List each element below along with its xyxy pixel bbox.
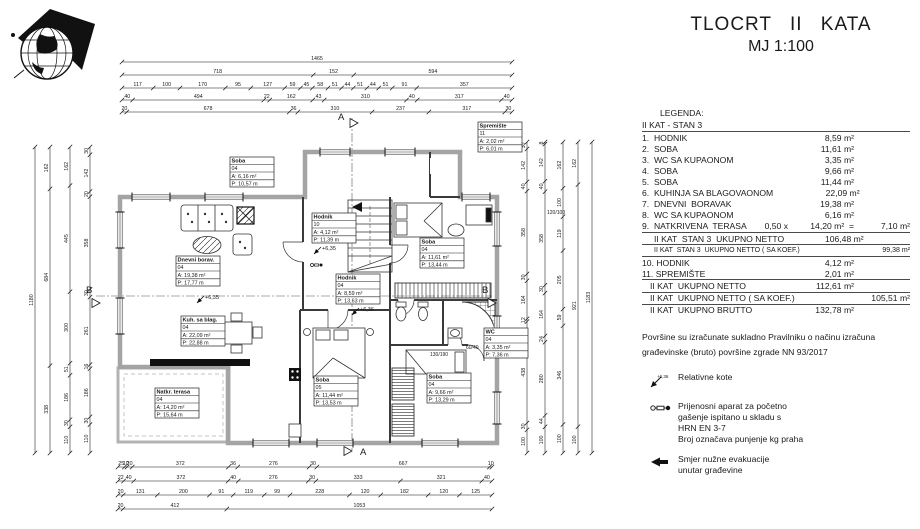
- svg-text:A: 11,61 m²: A: 11,61 m²: [422, 255, 450, 261]
- svg-text:142: 142: [84, 169, 90, 178]
- legend-row: 2. SOBA11,61 m²: [642, 143, 910, 154]
- svg-text:142: 142: [521, 161, 527, 170]
- svg-text:40: 40: [230, 475, 236, 481]
- svg-text:100: 100: [521, 437, 527, 446]
- drawing-title-block: TLOCRT II KATA MJ 1:100: [645, 14, 917, 56]
- svg-text:44: 44: [344, 82, 350, 88]
- wardrobe-bottom: [392, 368, 414, 436]
- armchair: [233, 234, 252, 255]
- svg-text:A: 14,20 m²: A: 14,20 m²: [157, 405, 185, 411]
- svg-text:164: 164: [539, 310, 545, 319]
- window: [132, 193, 170, 202]
- legend-subheading: II KAT - STAN 3: [642, 120, 910, 133]
- svg-text:120: 120: [439, 489, 448, 495]
- room-label-box: Hodnik10A: 4,12 m²P: 11,39 m: [312, 213, 356, 244]
- svg-text:22: 22: [118, 475, 124, 481]
- svg-text:40: 40: [484, 475, 490, 481]
- svg-text:B: B: [482, 285, 488, 296]
- legend-row: 8. WC SA KUPAONOM6,16 m²: [642, 210, 910, 221]
- svg-text:Soba: Soba: [232, 159, 247, 165]
- room-label-box: Spremište11A: 2,02 m²P: 6,01 m: [478, 122, 522, 153]
- svg-text:A: A: [338, 112, 345, 123]
- elevation-marker: +6,35: [197, 295, 219, 303]
- svg-text:20: 20: [118, 503, 124, 509]
- dimension-chain-horizontal: 718152594: [120, 69, 514, 77]
- svg-text:321: 321: [437, 475, 446, 481]
- tv-table: [237, 207, 254, 224]
- svg-text:152: 152: [329, 69, 338, 75]
- svg-text:182: 182: [400, 489, 409, 495]
- svg-text:594: 594: [428, 69, 437, 75]
- desk: [448, 205, 492, 236]
- svg-text:110: 110: [84, 435, 90, 443]
- svg-text:05: 05: [316, 385, 322, 391]
- svg-text:A: 8,59 m²: A: 8,59 m²: [338, 291, 363, 297]
- svg-text:04: 04: [183, 325, 189, 331]
- legend-cell: 99,38 m²: [869, 246, 910, 257]
- dimension-chain-vertical: 814240358301642428044100: [539, 140, 547, 455]
- svg-text:338: 338: [44, 405, 50, 414]
- legend-cell: 3,35 m²: [788, 155, 854, 166]
- svg-text:04: 04: [178, 265, 184, 271]
- legend-cell: 4. SOBA: [642, 166, 758, 177]
- calculation-note: Površine su izračunate sukladno Pravilni…: [642, 330, 912, 360]
- rug: [193, 237, 221, 254]
- svg-text:186: 186: [84, 388, 90, 397]
- symbol-text-line: HRN EN 3-7: [678, 423, 803, 434]
- svg-text:438: 438: [521, 368, 527, 377]
- svg-text:P: 13,63 m: P: 13,63 m: [338, 299, 365, 305]
- svg-text:40: 40: [126, 475, 132, 481]
- dimension-chain-vertical: 3014220358302611618630110: [84, 145, 92, 455]
- window: [493, 392, 502, 424]
- dimension-chain-horizontal: 11710017095127594558514451445191357: [120, 82, 514, 90]
- legend-cell: 9. NATKRIVENA TERASA: [642, 221, 758, 232]
- legend-row: 1. HODNIK8,59 m²: [642, 132, 910, 143]
- section-marker: A: [338, 112, 358, 128]
- svg-text:P: 13,44 m: P: 13,44 m: [422, 263, 449, 269]
- svg-text:30: 30: [521, 423, 527, 429]
- legend-cell: 8. WC SA KUPAONOM: [642, 210, 758, 221]
- symbol-entry-evacuation: Smjer nužne evakuacijeunutar građevine: [648, 454, 914, 476]
- svg-text:36: 36: [230, 461, 236, 467]
- svg-text:30: 30: [521, 274, 527, 280]
- bathroom-fixtures: [396, 302, 495, 338]
- svg-text:16: 16: [84, 364, 90, 370]
- room-label-box: Soba04A: 6,16 m²P: 10,57 m: [230, 157, 274, 188]
- svg-text:P: 22,88 m: P: 22,88 m: [183, 341, 210, 347]
- svg-text:Hodnik: Hodnik: [314, 215, 334, 221]
- svg-text:110: 110: [64, 436, 70, 444]
- svg-text:100: 100: [557, 434, 563, 443]
- elevation-marker: +6,35: [314, 246, 336, 254]
- svg-text:44: 44: [539, 418, 545, 424]
- svg-text:A: A: [360, 447, 367, 458]
- svg-text:P: 17,77 m: P: 17,77 m: [178, 281, 205, 287]
- svg-text:276: 276: [269, 461, 278, 467]
- legend-cell: 11,44 m²: [788, 177, 854, 188]
- svg-text:A: 11,44 m²: A: 11,44 m²: [316, 393, 344, 399]
- section-marker: A: [344, 447, 367, 459]
- svg-text:P: 7,36 m: P: 7,36 m: [486, 353, 510, 359]
- svg-text:A: 6,16 m²: A: 6,16 m²: [232, 174, 257, 180]
- room-label-box: Natkr. terasa04A: 14,20 m²P: 15,64 m: [155, 388, 199, 419]
- legend-cell: II KAT STAN 3 UKUPNO NETTO: [642, 234, 784, 245]
- svg-text:162: 162: [557, 161, 563, 170]
- legend-cell: 3. WC SA KUPAONOM: [642, 155, 758, 166]
- svg-text:A: 3,35 m²: A: 3,35 m²: [486, 345, 511, 351]
- symbol-label: Smjer nužne evakuacijeunutar građevine: [678, 454, 769, 476]
- wardrobe-top: [395, 283, 491, 298]
- dimension-chain-vertical: 162921100: [572, 140, 580, 455]
- legend-cell: 5. SOBA: [642, 177, 758, 188]
- svg-text:P: 6,01 m: P: 6,01 m: [480, 147, 504, 153]
- svg-text:P: 10,57 m: P: 10,57 m: [232, 182, 259, 188]
- sofa: [181, 205, 233, 231]
- svg-text:117: 117: [133, 82, 141, 88]
- window: [462, 193, 490, 202]
- svg-text:22: 22: [264, 94, 270, 100]
- legend-cell: 105,51 m²: [868, 293, 910, 304]
- svg-text:494: 494: [194, 94, 203, 100]
- svg-text:40: 40: [521, 183, 527, 189]
- svg-text:WC: WC: [486, 330, 495, 336]
- note-line: građevinske (bruto) površine zgrade NN 9…: [642, 345, 912, 360]
- legend-cell: 10. HODNIK: [642, 258, 758, 269]
- window: [116, 212, 125, 248]
- legend-cell: 9,66 m²: [788, 166, 854, 177]
- svg-text:20: 20: [121, 106, 127, 112]
- svg-text:921: 921: [572, 301, 578, 310]
- symbol-text-line: gašenje ispitano u skladu s: [678, 412, 803, 423]
- room-label-box: Hodnik04A: 8,59 m²P: 13,63 m: [336, 274, 380, 305]
- svg-text:358: 358: [539, 234, 545, 243]
- legend-cell: 4,12 m²: [788, 258, 854, 269]
- svg-text:30: 30: [84, 418, 90, 424]
- svg-text:04: 04: [422, 247, 428, 253]
- svg-text:44: 44: [370, 82, 376, 88]
- svg-text:11: 11: [480, 131, 486, 137]
- room-label-box: Dnevni borav.04A: 19,38 m²P: 17,77 m: [176, 256, 220, 287]
- window: [205, 193, 243, 202]
- legend-row: II KAT STAN 3 UKUPNO NETTO ( SA KOEF.)99…: [642, 245, 910, 257]
- svg-text:04: 04: [429, 382, 435, 388]
- svg-text:45: 45: [303, 82, 309, 88]
- svg-text:186: 186: [64, 393, 70, 402]
- svg-text:8: 8: [539, 142, 545, 145]
- svg-text:Natkr. terasa: Natkr. terasa: [157, 390, 191, 396]
- svg-text:317: 317: [455, 94, 464, 100]
- svg-text:300: 300: [64, 323, 70, 332]
- evacuation-arrow: [352, 202, 362, 212]
- bed-double-top: [394, 203, 442, 237]
- svg-text:1183: 1183: [586, 292, 592, 303]
- legend-cell: 8,59 m²: [788, 133, 854, 144]
- svg-text:100: 100: [539, 435, 545, 444]
- fire-extinguisher-symbol: [311, 264, 323, 267]
- elevation-marker-icon: +6,36: [648, 372, 678, 392]
- svg-text:04: 04: [157, 397, 163, 403]
- svg-text:51: 51: [64, 366, 70, 372]
- svg-text:99: 99: [274, 489, 280, 495]
- svg-text:200: 200: [179, 489, 188, 495]
- room-label-box: WC04A: 3,35 m²P: 7,36 m: [484, 328, 528, 359]
- legend-cell: 7. DNEVNI BORAVAK: [642, 199, 758, 210]
- window: [253, 439, 289, 448]
- dimension-chain-vertical: 1183: [586, 140, 594, 455]
- svg-text:30: 30: [64, 420, 70, 426]
- svg-text:A: 4,12 m²: A: 4,12 m²: [314, 230, 339, 236]
- fire-extinguisher-icon: [648, 401, 678, 445]
- svg-text:P: 13,53 m: P: 13,53 m: [316, 401, 343, 407]
- svg-text:95: 95: [235, 82, 241, 88]
- window: [320, 148, 350, 157]
- dimension-chain-vertical: 3014240358301641243830100: [521, 140, 529, 455]
- svg-text:1053: 1053: [354, 503, 366, 509]
- svg-text:1465: 1465: [311, 56, 323, 62]
- svg-text:91: 91: [402, 82, 408, 88]
- legend-cell: 22,09 m²: [800, 188, 859, 199]
- svg-text:A: 9,66 m²: A: 9,66 m²: [429, 390, 454, 396]
- legend-cell: 11,61 m²: [788, 144, 854, 155]
- svg-text:40: 40: [124, 94, 130, 100]
- svg-text:261: 261: [84, 326, 90, 335]
- dimension-chain-horizontal: 4049422162433104031740: [120, 94, 514, 102]
- legend-row: II KAT UKUPNO NETTO ( SA KOEF.)105,51 m²: [642, 293, 910, 305]
- svg-text:162: 162: [44, 163, 50, 172]
- svg-text:20: 20: [84, 191, 90, 197]
- symbol-text-line: unutar građevine: [678, 465, 769, 476]
- window-size-label: 130/190: [430, 352, 448, 358]
- svg-text:100: 100: [557, 198, 563, 207]
- svg-text:P: 15,64 m: P: 15,64 m: [157, 413, 184, 419]
- svg-text:A: 19,38 m²: A: 19,38 m²: [178, 273, 206, 279]
- svg-text:P: 13,29 m: P: 13,29 m: [429, 398, 456, 404]
- legend-row: 6. KUHINJA SA BLAGOVAONOM22,09 m²: [642, 188, 910, 199]
- svg-text:120: 120: [361, 489, 370, 495]
- legend: LEGENDA: II KAT - STAN 3 1. HODNIK8,59 m…: [642, 108, 910, 316]
- legend-row: 5. SOBA11,44 m²: [642, 177, 910, 188]
- dimension-chain-vertical: 162684338: [44, 145, 52, 455]
- svg-text:100: 100: [162, 82, 171, 88]
- legend-cell: 6. KUHINJA SA BLAGOVAONOM: [642, 188, 773, 199]
- legend-cell: II KAT UKUPNO NETTO ( SA KOEF.): [642, 293, 795, 304]
- legend-cell: 7,10 m²: [854, 221, 910, 232]
- floor-plan-page: TLOCRT II KATA MJ 1:100 LEGENDA: II KAT …: [0, 0, 920, 529]
- legend-cell: 14,20 m² =: [788, 221, 854, 232]
- legend-row: II KAT UKUPNO NETTO112,61 m²: [642, 280, 910, 292]
- svg-text:30: 30: [539, 286, 545, 292]
- svg-text:678: 678: [204, 106, 213, 112]
- svg-text:100: 100: [572, 435, 578, 444]
- svg-text:58: 58: [317, 82, 323, 88]
- svg-text:125: 125: [471, 489, 480, 495]
- svg-text:Kuh. sa blag.: Kuh. sa blag.: [183, 318, 218, 324]
- svg-text:276: 276: [269, 475, 278, 481]
- svg-text:04: 04: [486, 337, 492, 343]
- svg-text:51: 51: [383, 82, 389, 88]
- legend-cell: 132,78 m²: [788, 305, 854, 316]
- legend-row: 10. HODNIK4,12 m²: [642, 257, 910, 268]
- symbol-text-line: Broj označava punjenje kg praha: [678, 434, 803, 445]
- svg-text:142: 142: [539, 158, 545, 167]
- symbol-text-line: Relativne kote: [678, 372, 732, 383]
- symbol-entry-elevation: +6,36 Relativne kote: [648, 372, 914, 392]
- svg-text:30: 30: [505, 106, 511, 112]
- svg-text:51: 51: [357, 82, 363, 88]
- dimension-chain-horizontal: 251020372362763066710: [116, 461, 494, 469]
- svg-text:280: 280: [539, 374, 545, 383]
- svg-text:127: 127: [263, 82, 272, 88]
- window-size-label: 60/40: [466, 345, 479, 351]
- svg-text:59: 59: [557, 314, 563, 320]
- svg-text:04: 04: [232, 166, 238, 172]
- svg-text:30: 30: [84, 148, 90, 154]
- svg-text:40: 40: [504, 94, 510, 100]
- dimension-chain-horizontal: 2240372402763033332140: [116, 475, 494, 483]
- svg-text:+6,35: +6,35: [205, 295, 219, 301]
- symbol-legend: +6,36 Relativne kote Prijenosni aparat z…: [648, 372, 914, 485]
- svg-text:372: 372: [176, 461, 185, 467]
- svg-text:412: 412: [170, 503, 179, 509]
- svg-text:237: 237: [396, 106, 405, 112]
- svg-text:P: 11,39 m: P: 11,39 m: [314, 238, 340, 244]
- window: [422, 439, 458, 448]
- svg-text:358: 358: [521, 228, 527, 237]
- window: [116, 298, 125, 334]
- legend-row: 4. SOBA9,66 m²: [642, 165, 910, 176]
- floor-plan-svg: 1465718152594117100170951275945585144514…: [0, 0, 640, 529]
- legend-heading: LEGENDA:: [642, 108, 910, 119]
- svg-text:40: 40: [409, 94, 415, 100]
- svg-text:Soba: Soba: [316, 378, 331, 384]
- svg-text:228: 228: [315, 489, 324, 495]
- svg-text:333: 333: [354, 475, 363, 481]
- symbol-entry-extinguisher: Prijenosni aparat za početnogašenje ispi…: [648, 401, 914, 445]
- room-label-box: Kuh. sa blag.04A: 22,09 m²P: 22,88 m: [181, 316, 225, 347]
- legend-cell: 2. SOBA: [642, 144, 758, 155]
- note-line: Površine su izračunate sukladno Pravilni…: [642, 330, 912, 345]
- dimension-chain-vertical: 1180: [29, 145, 37, 455]
- symbol-text-line: Smjer nužne evakuacije: [678, 454, 769, 465]
- svg-text:445: 445: [64, 234, 70, 243]
- svg-text:119: 119: [557, 229, 563, 237]
- svg-text:10: 10: [314, 222, 320, 228]
- legend-row: 7. DNEVNI BORAVAK19,38 m²: [642, 199, 910, 210]
- svg-text:B: B: [86, 285, 92, 296]
- svg-text:20: 20: [127, 461, 133, 467]
- svg-text:+6,36: +6,36: [657, 374, 669, 379]
- window-size-label: 120/100: [547, 210, 565, 216]
- svg-text:162: 162: [572, 159, 578, 168]
- room-label-box: Soba04A: 11,61 m²P: 13,44 m: [420, 238, 464, 269]
- logo: [11, 9, 95, 79]
- svg-text:30: 30: [310, 461, 316, 467]
- svg-text:162: 162: [64, 162, 70, 171]
- symbol-label: Relativne kote: [678, 372, 732, 392]
- svg-text:24: 24: [539, 336, 545, 342]
- svg-text:667: 667: [399, 461, 408, 467]
- legend-cell: II KAT STAN 3 UKUPNO NETTO ( SA KOEF.): [642, 246, 800, 257]
- svg-text:Dnevni borav.: Dnevni borav.: [178, 258, 215, 264]
- svg-text:346: 346: [557, 371, 563, 380]
- svg-text:91: 91: [218, 489, 224, 495]
- svg-text:317: 317: [462, 106, 471, 112]
- symbol-label: Prijenosni aparat za početnogašenje ispi…: [678, 401, 803, 445]
- svg-text:Spremište: Spremište: [480, 124, 507, 130]
- legend-row: 11. SPREMIŠTE2,01 m²: [642, 268, 910, 280]
- room-label-box: Soba05A: 11,44 m²P: 13,53 m: [314, 376, 358, 407]
- svg-text:718: 718: [213, 69, 222, 75]
- svg-text:170: 170: [198, 82, 207, 88]
- svg-text:59: 59: [290, 82, 296, 88]
- legend-cell: II KAT UKUPNO NETTO: [642, 281, 758, 292]
- svg-text:684: 684: [44, 273, 50, 282]
- svg-text:119: 119: [244, 489, 252, 495]
- legend-cell: 11. SPREMIŠTE: [642, 269, 758, 280]
- window: [385, 148, 415, 157]
- svg-text:43: 43: [316, 94, 322, 100]
- legend-row: 9. NATKRIVENA TERASA0,50 x14,20 m² =7,10…: [642, 221, 910, 233]
- legend-cell: 6,16 m²: [788, 210, 854, 221]
- dimension-chain-vertical: 1624453005118630110: [64, 145, 72, 455]
- svg-text:164: 164: [521, 295, 527, 304]
- svg-text:A: 2,02 m²: A: 2,02 m²: [480, 139, 505, 145]
- svg-text:30: 30: [309, 475, 315, 481]
- legend-row: II KAT UKUPNO BRUTTO132,78 m²: [642, 305, 910, 316]
- svg-text:Hodnik: Hodnik: [338, 276, 358, 282]
- svg-text:205: 205: [557, 275, 563, 284]
- svg-text:Soba: Soba: [429, 375, 444, 381]
- window: [493, 212, 502, 246]
- legend-row: 3. WC SA KUPAONOM3,35 m²: [642, 154, 910, 165]
- legend-cell: 19,38 m²: [788, 199, 854, 210]
- legend-cell: 0,50 x: [758, 221, 788, 232]
- dimension-chain-horizontal: 201312009111999228120182120125: [116, 489, 494, 497]
- room-label-box: Soba04A: 9,66 m²P: 13,29 m: [427, 373, 471, 404]
- drawing-scale: MJ 1:100: [645, 38, 917, 56]
- svg-text:310: 310: [361, 94, 370, 100]
- svg-text:Soba: Soba: [422, 240, 437, 246]
- bed-double-bottom: [304, 328, 374, 378]
- dimension-chain-horizontal: 1465: [120, 56, 514, 64]
- svg-text:358: 358: [84, 238, 90, 247]
- dimension-chain-vertical: 16210011920559346100: [557, 140, 565, 455]
- svg-text:357: 357: [460, 82, 469, 88]
- svg-text:36: 36: [291, 106, 297, 112]
- legend-cell: 2,01 m²: [788, 269, 854, 280]
- svg-text:20: 20: [118, 489, 124, 495]
- evacuation-arrow-icon: [648, 454, 678, 476]
- window: [317, 439, 353, 448]
- svg-text:162: 162: [287, 94, 296, 100]
- legend-row: II KAT STAN 3 UKUPNO NETTO106,48 m²: [642, 233, 910, 245]
- legend-cell: II KAT UKUPNO BRUTTO: [642, 305, 758, 316]
- svg-text:372: 372: [177, 475, 186, 481]
- legend-cell: 112,61 m²: [788, 281, 854, 292]
- svg-text:04: 04: [338, 283, 344, 289]
- svg-text:131: 131: [136, 489, 145, 495]
- svg-text:+6,35: +6,35: [322, 246, 336, 252]
- svg-text:A: 22,09 m²: A: 22,09 m²: [183, 333, 211, 339]
- svg-text:1180: 1180: [29, 294, 35, 305]
- svg-text:+6,36: +6,36: [360, 307, 374, 313]
- legend-rows: 1. HODNIK8,59 m²2. SOBA11,61 m²3. WC SA …: [642, 132, 910, 316]
- legend-cell: 106,48 m²: [809, 234, 864, 245]
- dimension-chain-horizontal: 206783631023731730: [120, 106, 514, 114]
- svg-text:40: 40: [539, 183, 545, 189]
- dimension-chain-horizontal: 204121053: [116, 503, 494, 511]
